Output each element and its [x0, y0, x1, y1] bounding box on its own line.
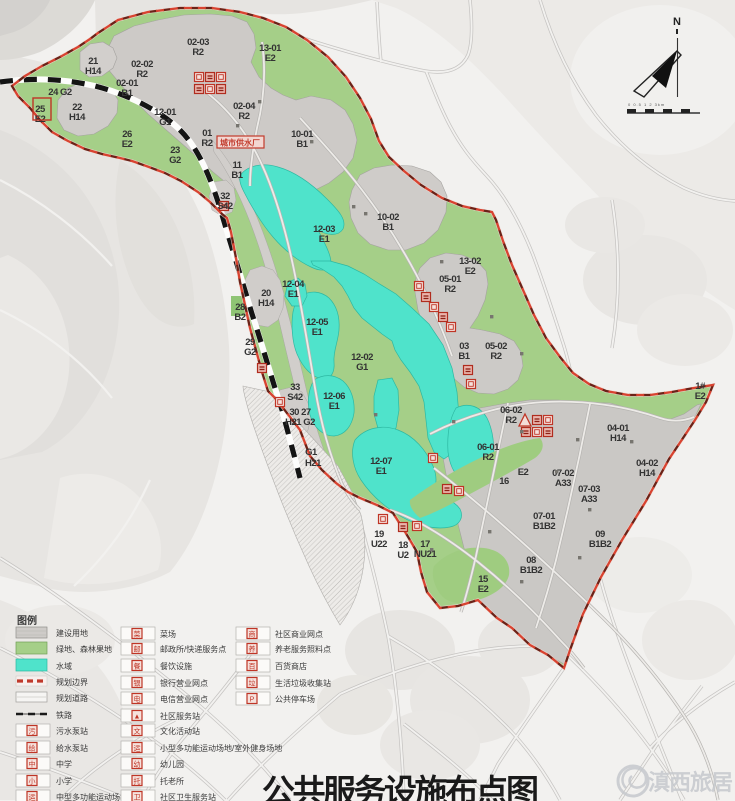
svg-text:幼儿园: 幼儿园	[160, 759, 184, 769]
svg-text:R2: R2	[201, 138, 212, 149]
svg-text:H14: H14	[85, 66, 102, 77]
svg-text:污水泵站: 污水泵站	[56, 726, 88, 736]
svg-text:社区商业网点: 社区商业网点	[275, 629, 323, 639]
svg-text:G2: G2	[244, 347, 256, 358]
svg-text:B1B2: B1B2	[589, 539, 612, 550]
svg-text:图例: 图例	[17, 614, 37, 627]
svg-text:公共停车场: 公共停车场	[275, 694, 315, 704]
svg-text:小学: 小学	[56, 776, 72, 786]
svg-text:R2: R2	[505, 415, 516, 426]
svg-text:H21 G2: H21 G2	[285, 417, 315, 428]
svg-text:社区卫生服务站: 社区卫生服务站	[160, 792, 216, 801]
svg-text:N: N	[673, 16, 681, 28]
svg-text:电: 电	[134, 695, 141, 704]
svg-text:餐饮设施: 餐饮设施	[160, 661, 192, 671]
svg-text:R2: R2	[490, 351, 501, 362]
svg-text:U22: U22	[371, 539, 387, 550]
svg-text:S42: S42	[217, 201, 233, 212]
svg-text:A33: A33	[581, 494, 597, 505]
svg-text:E2: E2	[695, 391, 706, 402]
svg-text:B1: B1	[458, 351, 470, 362]
svg-text:R2: R2	[444, 284, 455, 295]
svg-text:S42: S42	[287, 392, 303, 403]
svg-text:社区服务站: 社区服务站	[160, 711, 200, 721]
svg-text:E2: E2	[122, 139, 133, 150]
svg-text:R2: R2	[192, 47, 203, 58]
svg-text:小: 小	[29, 777, 36, 786]
svg-text:托: 托	[134, 777, 141, 786]
svg-text:H14: H14	[610, 433, 627, 444]
svg-text:污: 污	[29, 728, 36, 736]
svg-text:卫: 卫	[134, 794, 141, 801]
svg-text:生活垃圾收集站: 生活垃圾收集站	[275, 678, 331, 688]
svg-text:小型多功能运动场地/室外健身场地: 小型多功能运动场地/室外健身场地	[160, 743, 282, 753]
svg-text:餐: 餐	[134, 662, 141, 671]
svg-text:B1B2: B1B2	[520, 565, 543, 576]
svg-text:G1: G1	[159, 117, 172, 128]
svg-text:菜场: 菜场	[160, 629, 176, 639]
svg-text:城市供水厂: 城市供水厂	[220, 138, 260, 148]
svg-text:邮政所/快递服务点: 邮政所/快递服务点	[160, 644, 226, 654]
svg-text:运: 运	[29, 794, 36, 801]
svg-text:中: 中	[29, 760, 36, 769]
svg-text:公共服务设施布点图: 公共服务设施布点图	[262, 773, 537, 801]
svg-text:H14: H14	[639, 468, 656, 479]
svg-text:运: 运	[134, 745, 141, 753]
svg-text:B2: B2	[234, 312, 245, 323]
svg-text:中型多功能运动场地: 中型多功能运动场地	[56, 792, 128, 801]
svg-text:E1: E1	[312, 327, 324, 338]
svg-text:养老服务照料点: 养老服务照料点	[275, 644, 331, 654]
svg-text:R2: R2	[238, 111, 249, 122]
svg-text:垃: 垃	[249, 679, 256, 688]
svg-text:B1: B1	[231, 170, 243, 181]
svg-text:E1: E1	[329, 401, 341, 412]
svg-text:B1: B1	[296, 139, 308, 150]
svg-text:H14: H14	[69, 112, 86, 123]
svg-text:给水泵站: 给水泵站	[56, 743, 88, 753]
svg-text:A33: A33	[555, 478, 571, 489]
svg-text:文: 文	[134, 727, 141, 736]
svg-text:规划边界: 规划边界	[56, 677, 88, 687]
svg-text:0 0.5 1 2 3km: 0 0.5 1 2 3km	[628, 102, 665, 107]
svg-text:H14: H14	[258, 298, 275, 309]
svg-text:幼: 幼	[134, 760, 141, 769]
svg-text:银: 银	[134, 679, 141, 688]
svg-text:绿地、森林果地: 绿地、森林果地	[56, 644, 112, 654]
svg-text:给: 给	[29, 744, 36, 753]
svg-text:E2: E2	[478, 584, 489, 595]
svg-text:B1B2: B1B2	[533, 521, 556, 532]
svg-text:菜: 菜	[134, 630, 141, 639]
svg-text:建设用地: 建设用地	[56, 628, 88, 638]
svg-text:U2: U2	[397, 550, 408, 561]
svg-text:H21: H21	[305, 458, 322, 469]
svg-text:G2: G2	[169, 155, 181, 166]
svg-text:规划道路: 规划道路	[56, 693, 88, 703]
svg-text:百货商店: 百货商店	[275, 661, 307, 671]
svg-text:E2: E2	[518, 467, 529, 478]
svg-text:E2: E2	[265, 53, 276, 64]
svg-text:G1: G1	[356, 362, 369, 373]
svg-text:B1: B1	[121, 88, 133, 99]
svg-text:电信营业网点: 电信营业网点	[160, 694, 208, 704]
svg-text:E1: E1	[376, 466, 388, 477]
svg-text:邮: 邮	[134, 645, 141, 654]
svg-text:百: 百	[249, 663, 256, 671]
svg-text:E1: E1	[288, 289, 300, 300]
svg-text:R2: R2	[482, 452, 493, 463]
svg-text:水域: 水域	[56, 661, 72, 671]
svg-text:银行营业网点: 银行营业网点	[160, 678, 208, 688]
svg-text:G1: G1	[305, 447, 318, 458]
svg-text:铁路: 铁路	[56, 710, 72, 720]
svg-text:P: P	[250, 697, 255, 704]
svg-text:商: 商	[249, 630, 256, 639]
svg-text:养: 养	[249, 645, 256, 654]
svg-text:16: 16	[499, 476, 509, 487]
svg-text:E2: E2	[465, 266, 476, 277]
svg-text:E1: E1	[319, 234, 331, 245]
svg-text:R2: R2	[136, 69, 147, 80]
svg-text:中学: 中学	[56, 759, 72, 769]
svg-text:托老所: 托老所	[160, 776, 184, 786]
svg-text:NU21: NU21	[414, 549, 438, 560]
svg-text:▲: ▲	[134, 714, 141, 721]
svg-text:24 G2: 24 G2	[48, 87, 72, 98]
svg-text:滇西旅居: 滇西旅居	[648, 770, 733, 795]
svg-text:B1: B1	[382, 222, 394, 233]
svg-text:文化活动站: 文化活动站	[160, 726, 200, 736]
